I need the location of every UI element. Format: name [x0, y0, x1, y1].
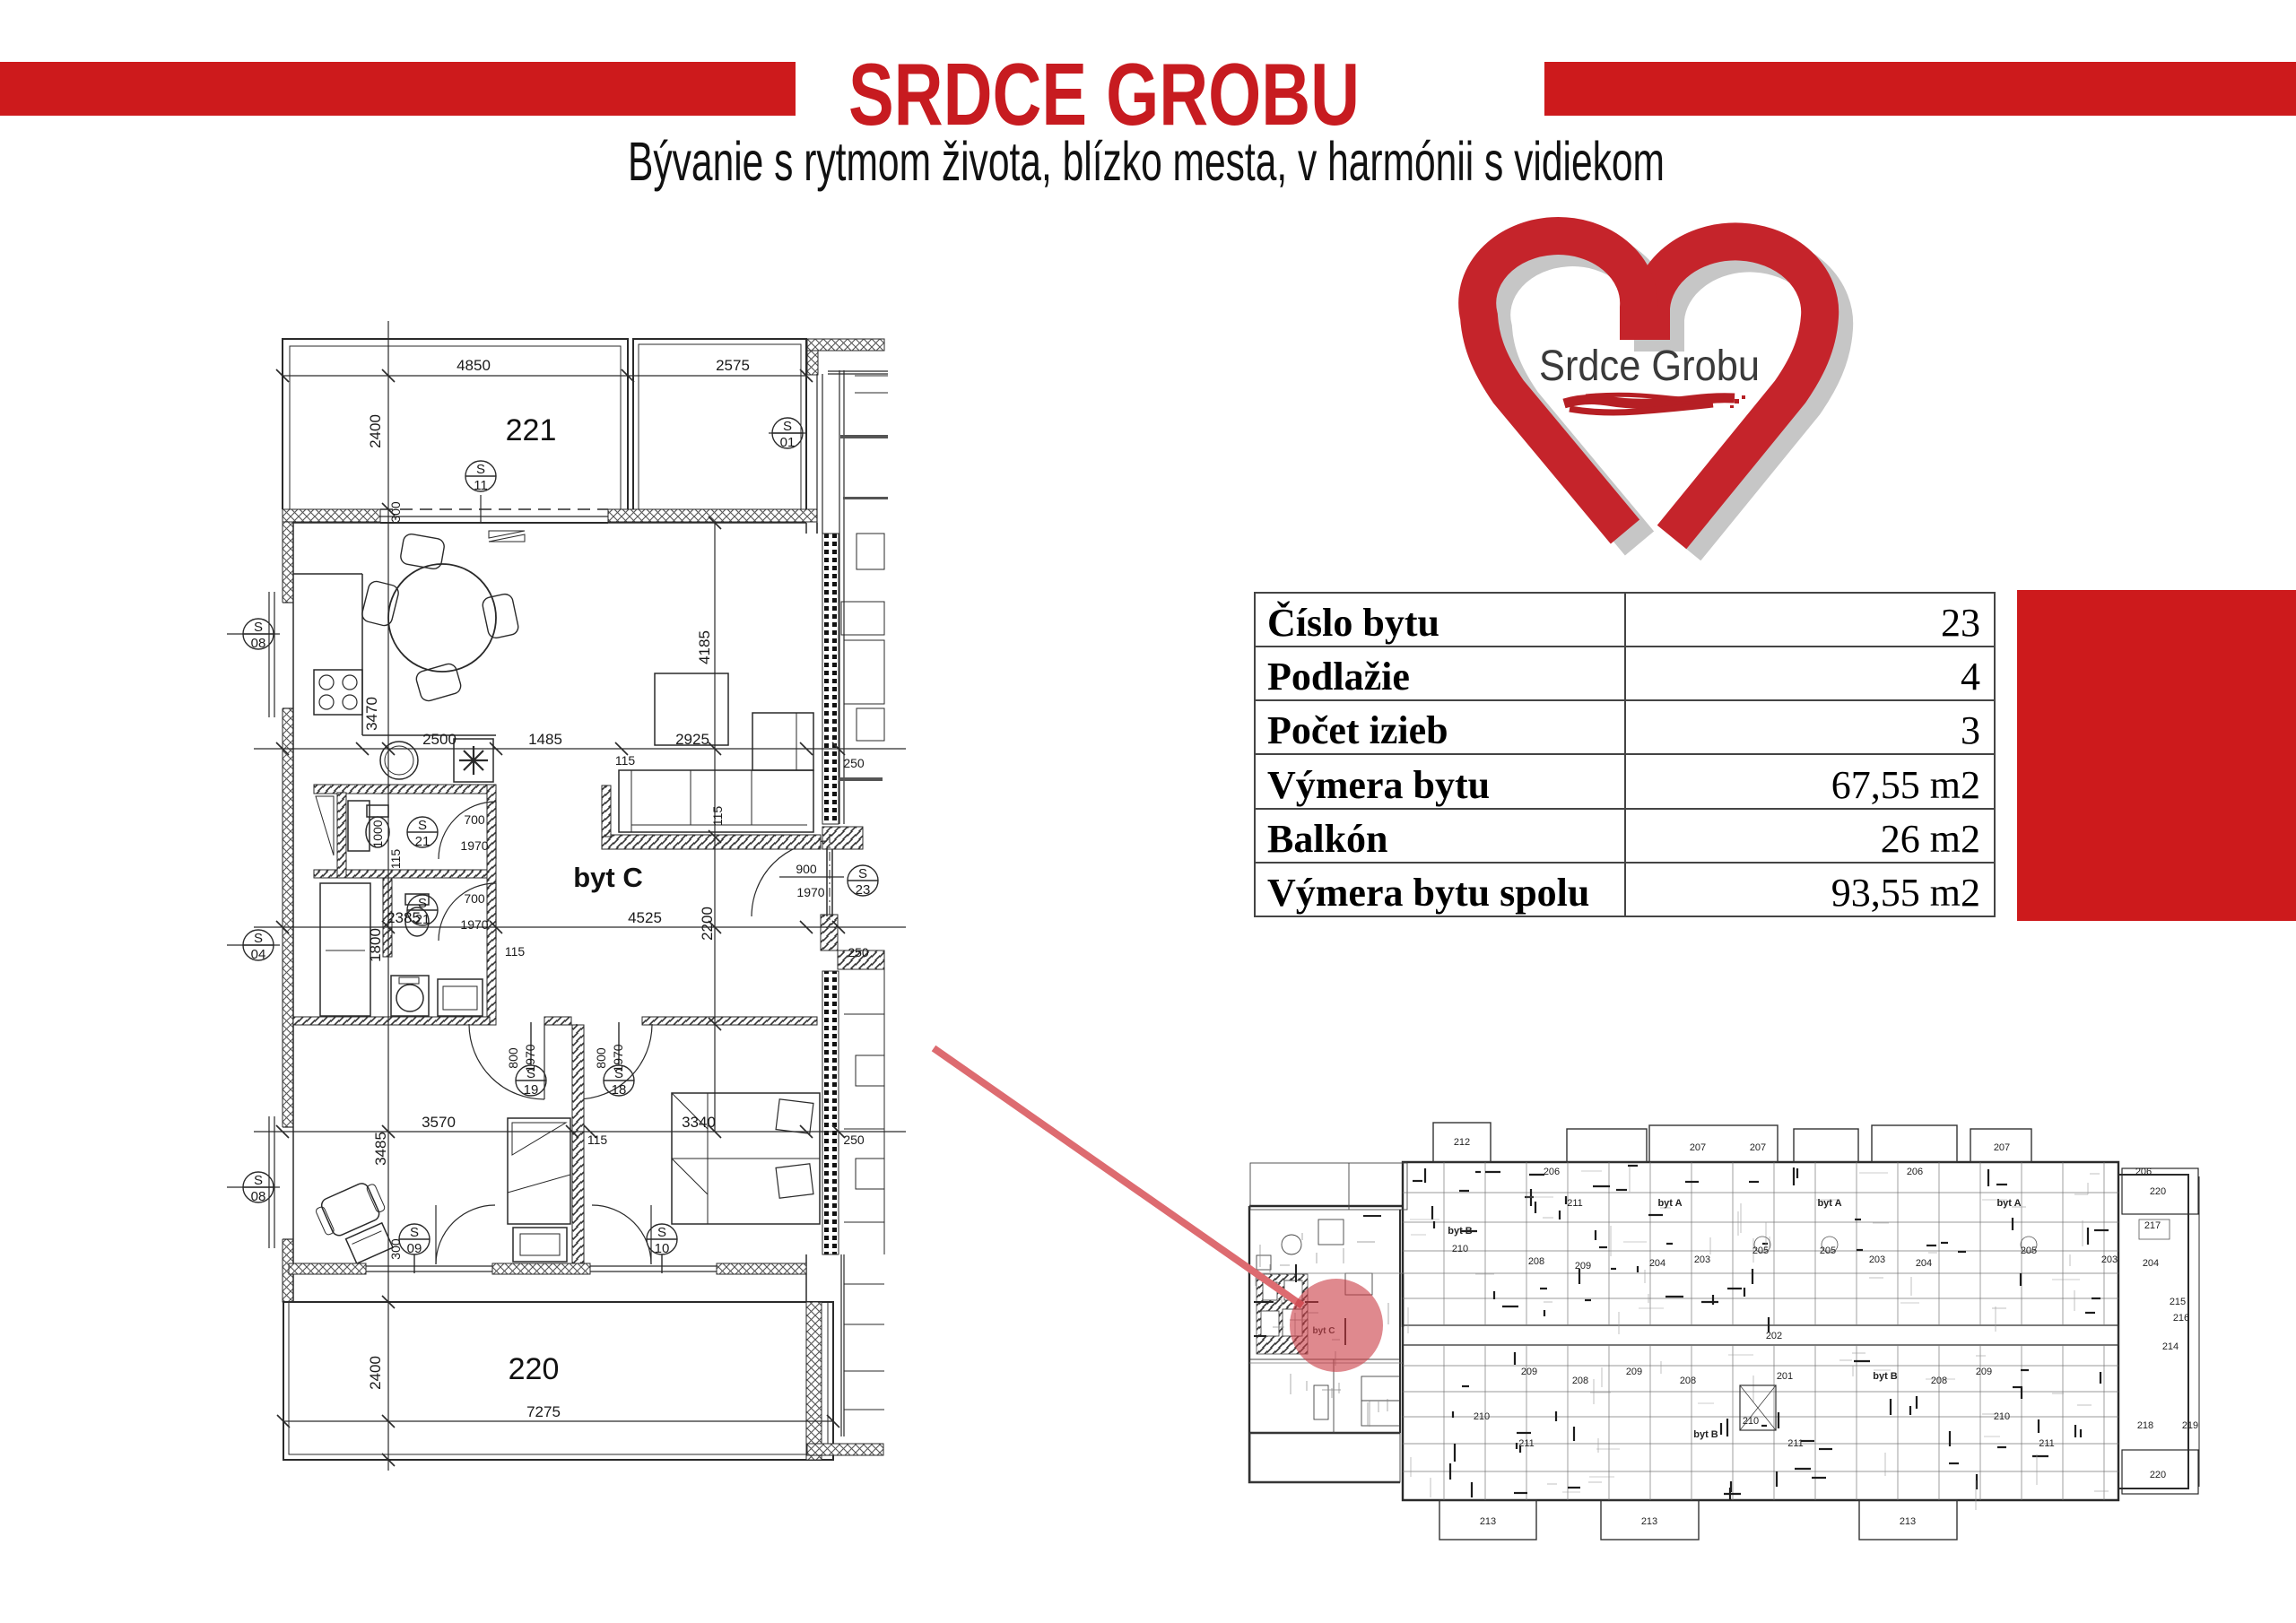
svg-text:213: 213	[1900, 1516, 1916, 1527]
svg-text:2575: 2575	[716, 357, 750, 374]
svg-text:800: 800	[506, 1047, 520, 1069]
svg-text:215: 215	[2170, 1297, 2186, 1307]
svg-text:26 m2: 26 m2	[1881, 817, 1980, 861]
svg-text:2500: 2500	[422, 731, 457, 748]
svg-text:211: 211	[1787, 1438, 1804, 1449]
svg-text:3340: 3340	[682, 1114, 716, 1131]
svg-text:byt B: byt B	[1693, 1429, 1718, 1440]
svg-text:byt B: byt B	[1873, 1371, 1898, 1382]
svg-text:11: 11	[474, 478, 488, 493]
svg-text:1800: 1800	[367, 928, 384, 962]
svg-text:214: 214	[2162, 1341, 2179, 1352]
svg-text:Výmera bytu: Výmera bytu	[1267, 763, 1490, 807]
svg-text:213: 213	[1641, 1516, 1657, 1527]
svg-text:7275: 7275	[526, 1403, 561, 1420]
svg-text:04: 04	[251, 947, 266, 962]
svg-text:3485: 3485	[372, 1132, 389, 1166]
svg-text:208: 208	[1528, 1256, 1544, 1267]
svg-text:205: 205	[1820, 1245, 1836, 1256]
svg-text:Číslo bytu: Číslo bytu	[1267, 601, 1439, 645]
svg-text:250: 250	[843, 756, 865, 770]
svg-text:1485: 1485	[528, 731, 562, 748]
svg-text:700: 700	[464, 812, 485, 827]
svg-text:S: S	[526, 1066, 535, 1081]
svg-text:115: 115	[710, 806, 725, 827]
svg-text:byt A: byt A	[1996, 1198, 2021, 1209]
svg-text:210: 210	[1452, 1244, 1468, 1254]
svg-text:08: 08	[251, 1189, 266, 1204]
svg-text:byt C: byt C	[573, 862, 643, 893]
svg-text:21: 21	[415, 912, 430, 927]
svg-text:800: 800	[594, 1047, 608, 1069]
svg-text:1970: 1970	[460, 917, 488, 932]
svg-text:208: 208	[1572, 1376, 1588, 1386]
svg-text:Bývanie s rytmom života, blízk: Bývanie s rytmom života, blízko mesta, v…	[628, 131, 1665, 192]
svg-text:212: 212	[1454, 1137, 1470, 1148]
svg-text:3470: 3470	[363, 697, 380, 731]
svg-text:byt A: byt A	[1817, 1198, 1841, 1209]
svg-text:18: 18	[612, 1082, 627, 1098]
svg-text:S: S	[410, 1225, 419, 1240]
svg-text:4185: 4185	[696, 630, 713, 664]
svg-text:23: 23	[1941, 601, 1980, 645]
svg-text:217: 217	[2144, 1220, 2161, 1231]
svg-text:210: 210	[1743, 1416, 1759, 1427]
svg-text:250: 250	[848, 945, 869, 959]
svg-text:204: 204	[2143, 1258, 2159, 1269]
svg-text:byt A: byt A	[1657, 1198, 1682, 1209]
svg-text:220: 220	[2150, 1470, 2166, 1480]
svg-text:207: 207	[1690, 1142, 1706, 1153]
svg-text:203: 203	[2101, 1254, 2118, 1265]
svg-text:211: 211	[1518, 1438, 1535, 1449]
svg-text:201: 201	[1777, 1371, 1793, 1382]
svg-text:93,55 m2: 93,55 m2	[1831, 871, 1980, 915]
svg-text:216: 216	[2173, 1313, 2189, 1324]
svg-text:23: 23	[856, 882, 871, 898]
svg-text:206: 206	[1907, 1167, 1923, 1177]
svg-text:S: S	[657, 1225, 666, 1240]
svg-text:221: 221	[506, 413, 557, 447]
svg-text:115: 115	[505, 944, 526, 959]
svg-text:219: 219	[2182, 1420, 2198, 1431]
svg-text:4: 4	[1961, 655, 1980, 699]
svg-text:213: 213	[1480, 1516, 1496, 1527]
svg-text:210: 210	[1994, 1411, 2010, 1422]
svg-text:207: 207	[1750, 1142, 1766, 1153]
svg-text:SRDCE GROBU: SRDCE GROBU	[848, 45, 1360, 143]
svg-text:250: 250	[843, 1133, 865, 1147]
svg-text:4850: 4850	[457, 357, 491, 374]
svg-text:220: 220	[2150, 1186, 2166, 1197]
svg-text:08: 08	[251, 636, 266, 651]
svg-text:S: S	[254, 931, 263, 946]
svg-text:4525: 4525	[628, 909, 662, 926]
svg-text:209: 209	[1521, 1367, 1537, 1377]
svg-text:203: 203	[1869, 1254, 1885, 1265]
svg-text:1970: 1970	[796, 885, 824, 899]
svg-text:300: 300	[388, 1238, 403, 1260]
svg-text:206: 206	[1544, 1167, 1560, 1177]
svg-text:204: 204	[1916, 1258, 1932, 1269]
svg-text:2200: 2200	[699, 907, 716, 941]
svg-text:S: S	[418, 896, 427, 911]
svg-text:2400: 2400	[367, 414, 384, 448]
svg-text:700: 700	[464, 891, 485, 906]
svg-text:211: 211	[2039, 1438, 2055, 1449]
svg-text:S: S	[418, 818, 427, 833]
svg-text:208: 208	[1931, 1376, 1947, 1386]
svg-text:Balkón: Balkón	[1267, 817, 1388, 861]
svg-text:Podlažie: Podlažie	[1267, 655, 1410, 699]
svg-text:209: 209	[1575, 1261, 1591, 1271]
svg-text:115: 115	[587, 1133, 608, 1147]
svg-text:209: 209	[1626, 1367, 1642, 1377]
svg-text:S: S	[858, 866, 867, 881]
svg-text:205: 205	[1752, 1245, 1769, 1256]
svg-text:3570: 3570	[422, 1114, 456, 1131]
svg-text:67,55 m2: 67,55 m2	[1831, 763, 1980, 807]
svg-text:900: 900	[796, 862, 817, 876]
svg-text:211: 211	[1567, 1198, 1583, 1209]
svg-text:220: 220	[509, 1352, 560, 1386]
svg-text:205: 205	[2021, 1245, 2037, 1256]
svg-text:1970: 1970	[460, 838, 488, 853]
svg-text:09: 09	[407, 1241, 422, 1256]
svg-text:209: 209	[1976, 1367, 1992, 1377]
svg-text:115: 115	[615, 753, 636, 768]
svg-text:218: 218	[2137, 1420, 2153, 1431]
svg-text:19: 19	[524, 1082, 539, 1098]
svg-text:203: 203	[1694, 1254, 1710, 1265]
svg-text:300: 300	[388, 501, 403, 523]
svg-text:21: 21	[415, 834, 430, 849]
svg-text:2400: 2400	[367, 1356, 384, 1390]
svg-text:210: 210	[1474, 1411, 1490, 1422]
svg-text:Výmera bytu spolu: Výmera bytu spolu	[1267, 871, 1589, 915]
svg-text:S: S	[783, 419, 792, 434]
svg-text:3: 3	[1961, 708, 1980, 752]
svg-text:10: 10	[655, 1241, 670, 1256]
svg-text:208: 208	[1680, 1376, 1696, 1386]
svg-text:Srdce Grobu: Srdce Grobu	[1539, 343, 1760, 390]
svg-text:202: 202	[1766, 1331, 1782, 1341]
svg-text:2925: 2925	[675, 731, 709, 748]
svg-text:204: 204	[1649, 1258, 1665, 1269]
svg-text:1000: 1000	[370, 820, 385, 847]
svg-text:01: 01	[780, 435, 796, 450]
svg-text:S: S	[614, 1066, 623, 1081]
svg-text:S: S	[476, 462, 485, 477]
svg-text:Počet izieb: Počet izieb	[1267, 708, 1448, 752]
svg-text:207: 207	[1994, 1142, 2010, 1153]
svg-text:S: S	[254, 1173, 263, 1188]
svg-text:206: 206	[2135, 1167, 2152, 1177]
svg-text:byt B: byt B	[1448, 1226, 1473, 1237]
svg-text:S: S	[254, 620, 263, 635]
svg-text:115: 115	[388, 849, 403, 870]
